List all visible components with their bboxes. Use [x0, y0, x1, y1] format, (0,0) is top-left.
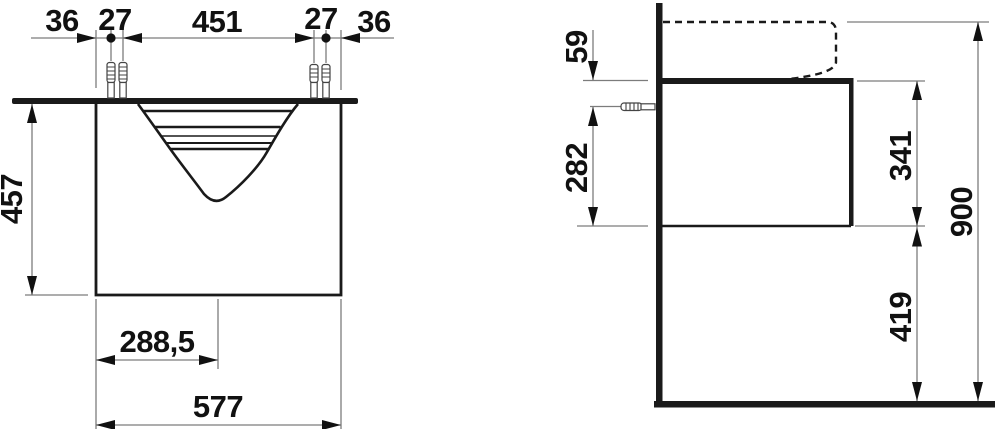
dim-label-top-to-fixing: 59	[559, 30, 594, 64]
arrowhead	[973, 22, 983, 41]
arrowhead	[588, 107, 598, 126]
fixing-to-bottom-dimension: 282	[559, 107, 648, 226]
technical-drawing-page: 36 27 451 27 36 457 288,5 577	[0, 0, 1000, 429]
arrowhead	[96, 420, 115, 429]
vanity-cabinet-side	[662, 78, 854, 226]
arrowhead	[27, 104, 37, 123]
dim-label-basin-depth: 457	[0, 174, 29, 224]
cabinet-front-edge	[849, 78, 854, 226]
dim-label-total-width: 577	[193, 389, 243, 424]
top-to-fixing-dimension: 59	[559, 30, 648, 81]
top-dimension-chain: 36 27 451 27 36	[31, 1, 394, 90]
arrowhead	[912, 207, 922, 226]
mounting-screw-side	[590, 103, 655, 111]
dimension-drawing-canvas: 36 27 451 27 36 457 288,5 577	[0, 0, 1000, 429]
cabinet-top-edge	[662, 78, 852, 84]
mounting-screw	[119, 63, 127, 99]
countertop-front	[12, 98, 358, 104]
mounting-screws-front	[107, 63, 330, 99]
bottom-dimensions: 288,5 577	[96, 299, 341, 429]
mounting-screw	[107, 63, 115, 99]
arrowhead	[199, 355, 218, 365]
wall	[656, 3, 663, 407]
floor	[654, 401, 995, 408]
cabinet-height-dimension: 341	[855, 81, 925, 226]
arrowhead	[27, 276, 37, 295]
arrowhead	[588, 207, 598, 226]
washbasin-dashed-outline	[663, 22, 836, 81]
dim-label-fixing-to-bottom: 282	[559, 143, 594, 193]
arrowhead	[322, 420, 341, 429]
mounting-screw	[310, 65, 318, 99]
mounting-screw	[322, 65, 330, 99]
dim-label-right-spacing: 27	[304, 1, 337, 36]
dim-label-center-span: 451	[192, 4, 242, 39]
basin-depth-dimension: 457	[0, 104, 88, 295]
arrowhead	[973, 382, 983, 401]
dim-label-right-margin: 36	[357, 4, 391, 39]
dim-label-left-margin: 36	[45, 3, 79, 38]
dim-label-center-offset: 288,5	[119, 324, 194, 359]
floor-clearance-dimension: 419	[883, 226, 922, 401]
dim-label-floor-clearance: 419	[883, 292, 918, 342]
arrowhead	[77, 33, 96, 43]
dim-label-total-height: 900	[944, 187, 979, 237]
arrowhead	[912, 81, 922, 100]
washbasin-bowl-front	[138, 104, 298, 201]
side-view: 59 282 341 419	[559, 3, 995, 408]
dim-label-cabinet-height: 341	[883, 131, 918, 181]
arrowhead	[912, 228, 922, 247]
front-view: 36 27 451 27 36 457 288,5 577	[0, 1, 394, 429]
arrowhead	[96, 355, 115, 365]
dim-label-left-spacing: 27	[98, 2, 131, 37]
arrowhead	[912, 382, 922, 401]
